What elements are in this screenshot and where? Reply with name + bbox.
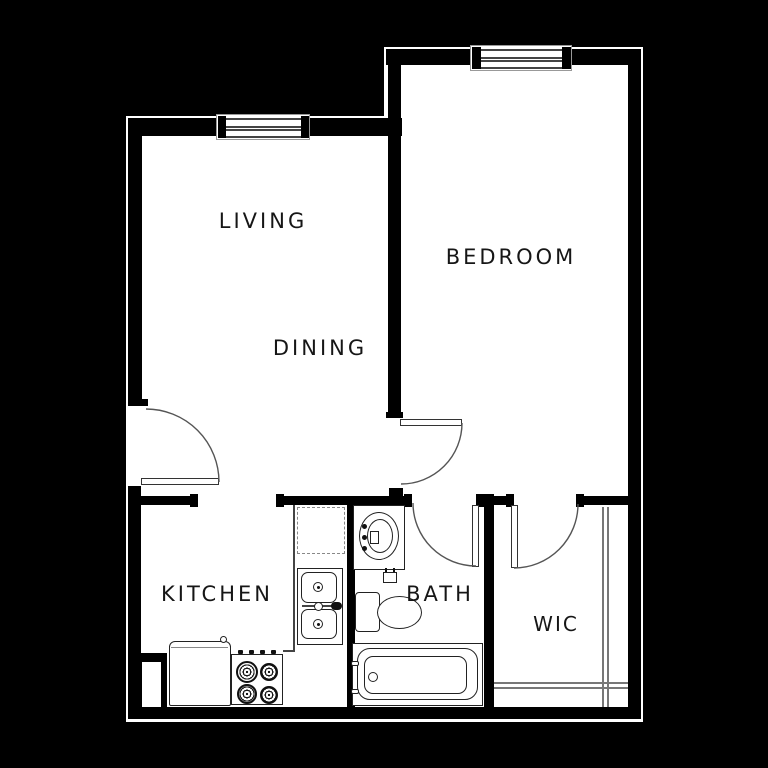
bath-door-arc	[413, 503, 476, 566]
wic-door-arc	[514, 504, 578, 568]
floor-plan: LIVING DINING BEDROOM KITCHEN BATH WIC	[0, 0, 768, 768]
room-label-living: LIVING	[219, 209, 307, 233]
room-label-bedroom: BEDROOM	[446, 245, 577, 269]
room-label-bath: BATH	[406, 582, 474, 606]
entry-door-arc	[146, 409, 219, 482]
room-label-dining: DINING	[273, 336, 367, 360]
room-label-wic: WIC	[533, 612, 579, 636]
door-arcs-layer	[0, 0, 768, 768]
bedroom-door-arc	[401, 423, 462, 484]
room-label-kitchen: KITCHEN	[161, 582, 273, 606]
